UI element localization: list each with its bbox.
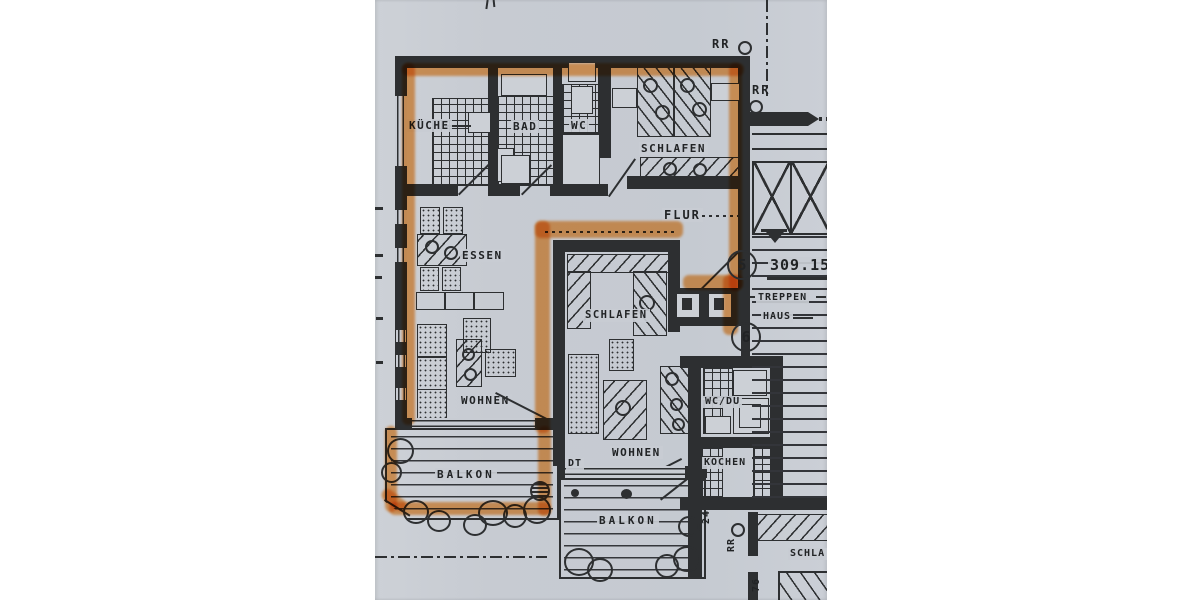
rainpipe-circle: [738, 41, 752, 55]
table-circle: [444, 246, 458, 260]
dimension-tick: [375, 276, 382, 279]
wall-block-left: [688, 366, 701, 498]
highlight-balkon-bottom: [389, 502, 551, 515]
window-glazing-pane: [790, 161, 827, 235]
sideboard: [416, 292, 504, 310]
bathtub: [501, 74, 547, 96]
dt-label: DT: [566, 458, 584, 470]
chair: [442, 267, 461, 291]
bath-shower: [501, 155, 530, 184]
pillow-circle: [692, 102, 707, 117]
dim-76: 76: [752, 578, 762, 592]
armchair-circle: [462, 348, 475, 361]
pillow-circle: [670, 398, 683, 411]
dimension-tick: [375, 254, 383, 257]
wcdu-basin: [705, 416, 731, 434]
label-tick: [816, 296, 826, 298]
pipe-dot: [571, 489, 579, 497]
room-label-wc: WC: [569, 119, 589, 132]
bed: [637, 67, 674, 137]
level-value: 309.15: [768, 257, 827, 274]
pillow-circle: [665, 372, 679, 386]
room-label-flur: FLUR: [662, 208, 703, 222]
label-tick: [749, 296, 755, 298]
room-label-schlafen-cut: SCHLA: [788, 548, 827, 560]
highlight-mid-left: [535, 221, 550, 433]
appliance-icon: [682, 298, 692, 310]
pillow-circle: [655, 105, 670, 120]
bed: [674, 67, 711, 137]
room-label-kochen: KOCHEN: [702, 457, 748, 469]
cropped-text-mark: [493, 0, 496, 7]
side-table: [609, 339, 634, 371]
room-label-wcdu: WC/DU: [703, 396, 742, 408]
window-pier: [557, 466, 565, 478]
sofa-section: [417, 324, 447, 357]
kochen-counter-hatch: [701, 448, 723, 498]
pillow-circle: [615, 400, 631, 416]
coffee-table: [485, 349, 516, 377]
label-tick: [793, 317, 813, 319]
level-underline: [767, 277, 827, 280]
window-glazing-pane: [752, 161, 792, 235]
chair: [420, 207, 440, 234]
chair: [420, 267, 439, 291]
highlight-left: [402, 63, 415, 425]
pillow-circle: [672, 418, 685, 431]
wall-bottom-right: [748, 512, 758, 556]
pipe-dot: [621, 489, 632, 499]
plant-circle: [678, 516, 700, 537]
wall-flur-north: [550, 184, 608, 196]
axis-line: [766, 0, 768, 96]
wc-toilet: [571, 86, 593, 114]
table-circle: [425, 240, 439, 254]
dimension-tick: [376, 317, 383, 320]
room-label-balkon-left: BALKON: [435, 468, 497, 481]
dim-24: 24: [702, 510, 712, 524]
room-label-treppenhaus-1: TREPPEN: [756, 292, 809, 304]
wardrobe-circle: [663, 162, 677, 176]
room-label-essen: ESSEN: [460, 249, 505, 262]
level-marker-triangle: [766, 232, 784, 243]
highlight-balkon-right: [538, 426, 551, 516]
plant-circle: [587, 558, 613, 582]
rainpipe-circle: [731, 523, 745, 537]
unit-number-6: 6: [731, 322, 761, 352]
property-line: [375, 556, 547, 558]
wall-arrow-bar: [748, 112, 808, 126]
floorplan-paper-photo: RR RR KÜCHE BAD WC SCHLAFEN: [375, 0, 827, 600]
rr-label-bottom: RR: [727, 538, 737, 552]
unit-number-5: 5: [727, 250, 757, 280]
wall-arrow-tip: [808, 112, 819, 126]
pillow-circle: [643, 78, 658, 93]
sofa-section: [417, 357, 447, 390]
wardrobe: [757, 514, 827, 541]
plant-circle: [673, 546, 701, 572]
highlight-flur-south: [535, 221, 683, 238]
wc-floor: [562, 134, 600, 185]
pillow-circle: [680, 78, 695, 93]
bed: [778, 571, 827, 600]
chair: [443, 207, 463, 234]
wcdu-tile-hatch: [703, 368, 733, 398]
wardrobe: [640, 157, 742, 180]
room-label-bad: BAD: [511, 120, 539, 133]
room-label-schlafen-top: SCHLAFEN: [639, 142, 708, 155]
kitchen-sink: [468, 112, 491, 133]
highlight-top: [402, 63, 744, 76]
wall-mid-top: [553, 240, 680, 252]
cropped-text-mark: [485, 0, 488, 9]
facade-line: [752, 133, 827, 135]
room-label-wohnen2: WOHNEN: [610, 446, 663, 459]
room-label-balkon-right: BALKON: [597, 514, 659, 527]
facade-line: [752, 148, 827, 150]
rr-label-top: RR: [712, 38, 730, 50]
nightstand: [612, 88, 637, 108]
rr-label-right: RR: [752, 84, 770, 96]
sofa-section: [417, 389, 447, 421]
room-label-treppenhaus-2: HAUS: [761, 311, 793, 323]
wall-mid-left: [553, 240, 565, 466]
armchair-circle: [464, 368, 477, 381]
dimension-tick: [376, 361, 383, 364]
dimension-tick: [375, 207, 383, 210]
shelf: [568, 354, 599, 434]
room-label-schlafen-mid: SCHLAFEN: [583, 309, 650, 322]
wall-dash: [819, 117, 827, 121]
wardrobe-circle: [693, 163, 707, 177]
